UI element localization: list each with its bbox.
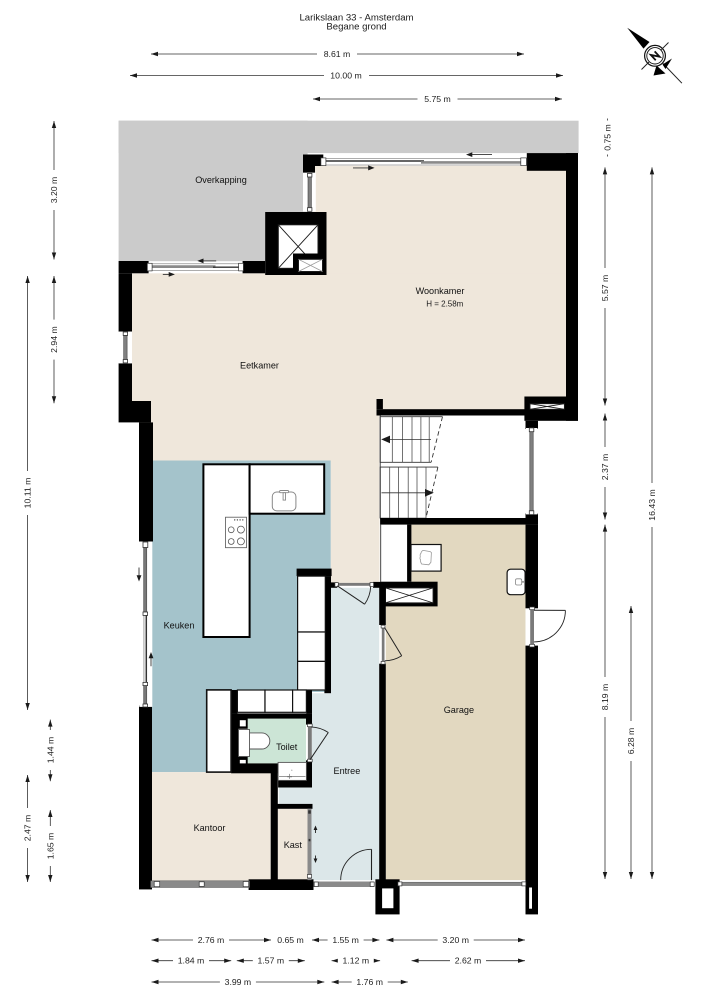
svg-text:Entree: Entree <box>334 766 361 776</box>
svg-text:Begane grond: Begane grond <box>326 22 386 33</box>
svg-text:2.94 m: 2.94 m <box>49 326 59 353</box>
svg-text:Keuken: Keuken <box>164 621 195 631</box>
svg-text:10.11 m: 10.11 m <box>23 478 33 509</box>
svg-text:2.62 m: 2.62 m <box>455 956 482 966</box>
svg-text:8.19 m: 8.19 m <box>600 684 610 711</box>
svg-text:1.55 m: 1.55 m <box>332 935 359 945</box>
svg-text:1.57 m: 1.57 m <box>258 956 285 966</box>
svg-text:3.20 m: 3.20 m <box>49 177 59 204</box>
svg-text:5.75 m: 5.75 m <box>424 94 451 104</box>
svg-text:1.84 m: 1.84 m <box>178 956 205 966</box>
svg-text:Eetkamer: Eetkamer <box>240 361 279 371</box>
svg-text:1.44 m: 1.44 m <box>45 737 55 764</box>
svg-text:0.65 m: 0.65 m <box>277 935 304 945</box>
svg-text:16.43 m: 16.43 m <box>647 489 657 520</box>
svg-text:6.28 m: 6.28 m <box>626 728 636 755</box>
svg-text:1.12 m: 1.12 m <box>343 956 370 966</box>
svg-text:3.20 m: 3.20 m <box>442 935 469 945</box>
svg-text:1.76 m: 1.76 m <box>356 977 383 987</box>
svg-text:Woonkamer: Woonkamer <box>416 286 465 296</box>
svg-text:Garage: Garage <box>444 705 474 715</box>
svg-text:8.61 m: 8.61 m <box>324 49 351 59</box>
svg-text:0.75 m: 0.75 m <box>603 124 613 151</box>
svg-text:Toilet: Toilet <box>276 742 298 752</box>
svg-text:Kast: Kast <box>284 840 303 850</box>
svg-text:10.00 m: 10.00 m <box>330 71 361 81</box>
svg-text:Kantoor: Kantoor <box>194 823 226 833</box>
svg-text:2.76 m: 2.76 m <box>198 935 225 945</box>
svg-text:3.99 m: 3.99 m <box>225 977 252 987</box>
svg-text:H = 2.58m: H = 2.58m <box>426 300 463 309</box>
svg-text:2.47 m: 2.47 m <box>23 815 33 842</box>
svg-text:2.37 m: 2.37 m <box>600 454 610 481</box>
svg-text:1.65 m: 1.65 m <box>45 833 55 860</box>
svg-text:5.57 m: 5.57 m <box>600 275 610 302</box>
svg-text:Overkapping: Overkapping <box>195 175 247 185</box>
